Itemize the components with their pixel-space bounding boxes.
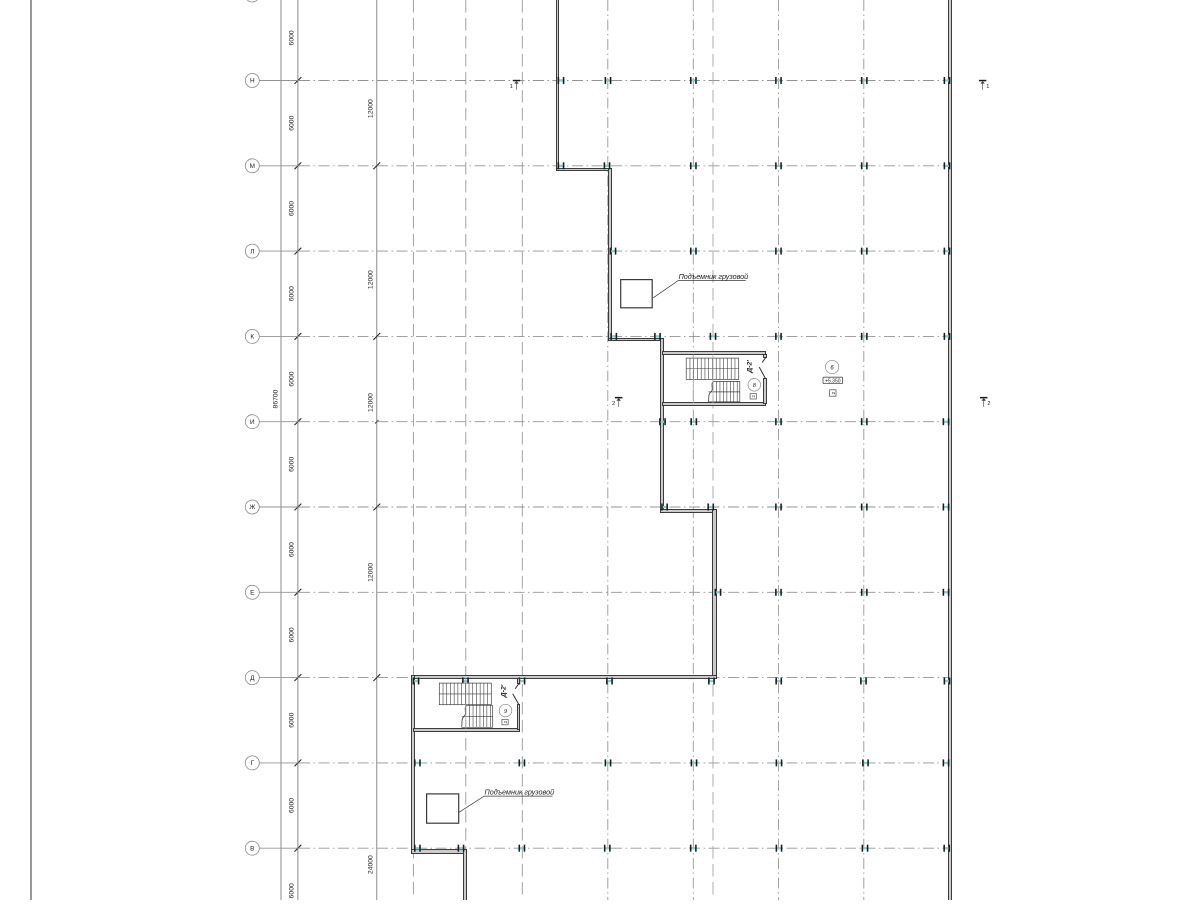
- svg-text:1: 1: [986, 84, 989, 90]
- svg-text:86700: 86700: [273, 389, 280, 408]
- svg-text:6000: 6000: [289, 115, 296, 130]
- svg-text:В: В: [250, 845, 254, 852]
- svg-text:12000: 12000: [367, 563, 374, 582]
- svg-text:Д-2': Д-2': [746, 360, 753, 374]
- svg-text:6000: 6000: [289, 30, 296, 45]
- svg-text:6000: 6000: [289, 371, 296, 386]
- svg-text:12000: 12000: [367, 393, 374, 412]
- svg-text:9: 9: [504, 709, 507, 715]
- svg-text:2: 2: [751, 395, 756, 398]
- svg-text:6000: 6000: [289, 883, 296, 898]
- svg-text:6000: 6000: [289, 286, 296, 301]
- svg-text:6000: 6000: [289, 457, 296, 472]
- svg-text:К: К: [250, 334, 254, 341]
- svg-text:2: 2: [987, 401, 990, 407]
- svg-text:12000: 12000: [367, 99, 374, 118]
- svg-text:Н: Н: [250, 78, 255, 85]
- svg-text:2: 2: [503, 720, 508, 723]
- svg-text:Л: Л: [250, 248, 254, 255]
- svg-text:24000: 24000: [367, 855, 374, 874]
- svg-text:6000: 6000: [289, 201, 296, 216]
- svg-text:+5.350: +5.350: [825, 378, 841, 384]
- svg-text:6000: 6000: [289, 542, 296, 557]
- svg-text:М: М: [250, 163, 255, 170]
- svg-text:Подъемник грузовой: Подъемник грузовой: [485, 788, 555, 797]
- svg-text:Е: Е: [250, 590, 254, 597]
- svg-text:6000: 6000: [289, 798, 296, 813]
- svg-text:2: 2: [831, 391, 837, 394]
- svg-text:6000: 6000: [289, 712, 296, 727]
- svg-text:Д-2': Д-2': [501, 684, 508, 698]
- svg-text:6000: 6000: [289, 627, 296, 642]
- svg-text:1: 1: [510, 84, 513, 90]
- svg-text:2: 2: [612, 401, 615, 407]
- svg-text:Г: Г: [251, 760, 255, 767]
- svg-text:Д: Д: [250, 675, 255, 682]
- svg-text:И: И: [250, 419, 255, 426]
- svg-text:Ж: Ж: [249, 504, 255, 511]
- svg-text:12000: 12000: [367, 270, 374, 289]
- svg-text:Подъемник грузовой: Подъемник грузовой: [679, 272, 749, 281]
